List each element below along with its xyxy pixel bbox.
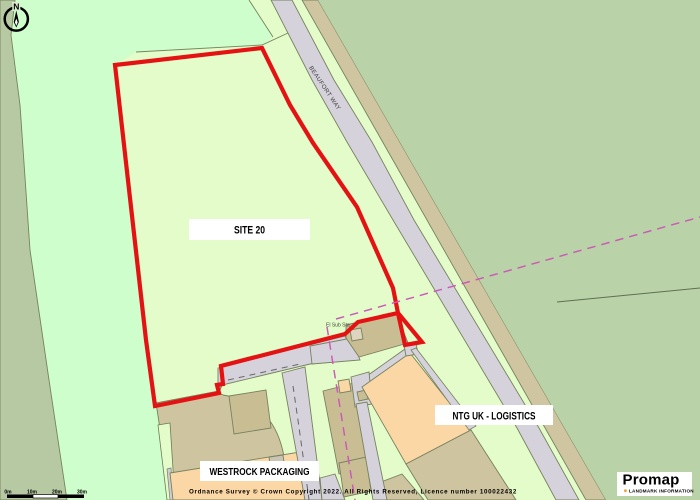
svg-text:SITE 20: SITE 20 xyxy=(234,225,265,237)
svg-text:0m: 0m xyxy=(4,490,12,496)
svg-text:Promap: Promap xyxy=(623,472,680,489)
svg-text:El Sub Sta: El Sub Sta xyxy=(326,323,350,329)
svg-text:N: N xyxy=(13,1,19,11)
svg-text:20m: 20m xyxy=(52,490,63,496)
svg-text:WESTROCK PACKAGING: WESTROCK PACKAGING xyxy=(210,466,310,478)
svg-text:LANDMARK INFORMATION: LANDMARK INFORMATION xyxy=(629,489,694,494)
svg-text:NTG UK - LOGISTICS: NTG UK - LOGISTICS xyxy=(453,411,536,423)
svg-text:10m: 10m xyxy=(27,490,38,496)
svg-text:30m: 30m xyxy=(77,490,88,496)
svg-text:Ordnance Survey © Crown Copyri: Ordnance Survey © Crown Copyright 2022. … xyxy=(189,489,517,496)
